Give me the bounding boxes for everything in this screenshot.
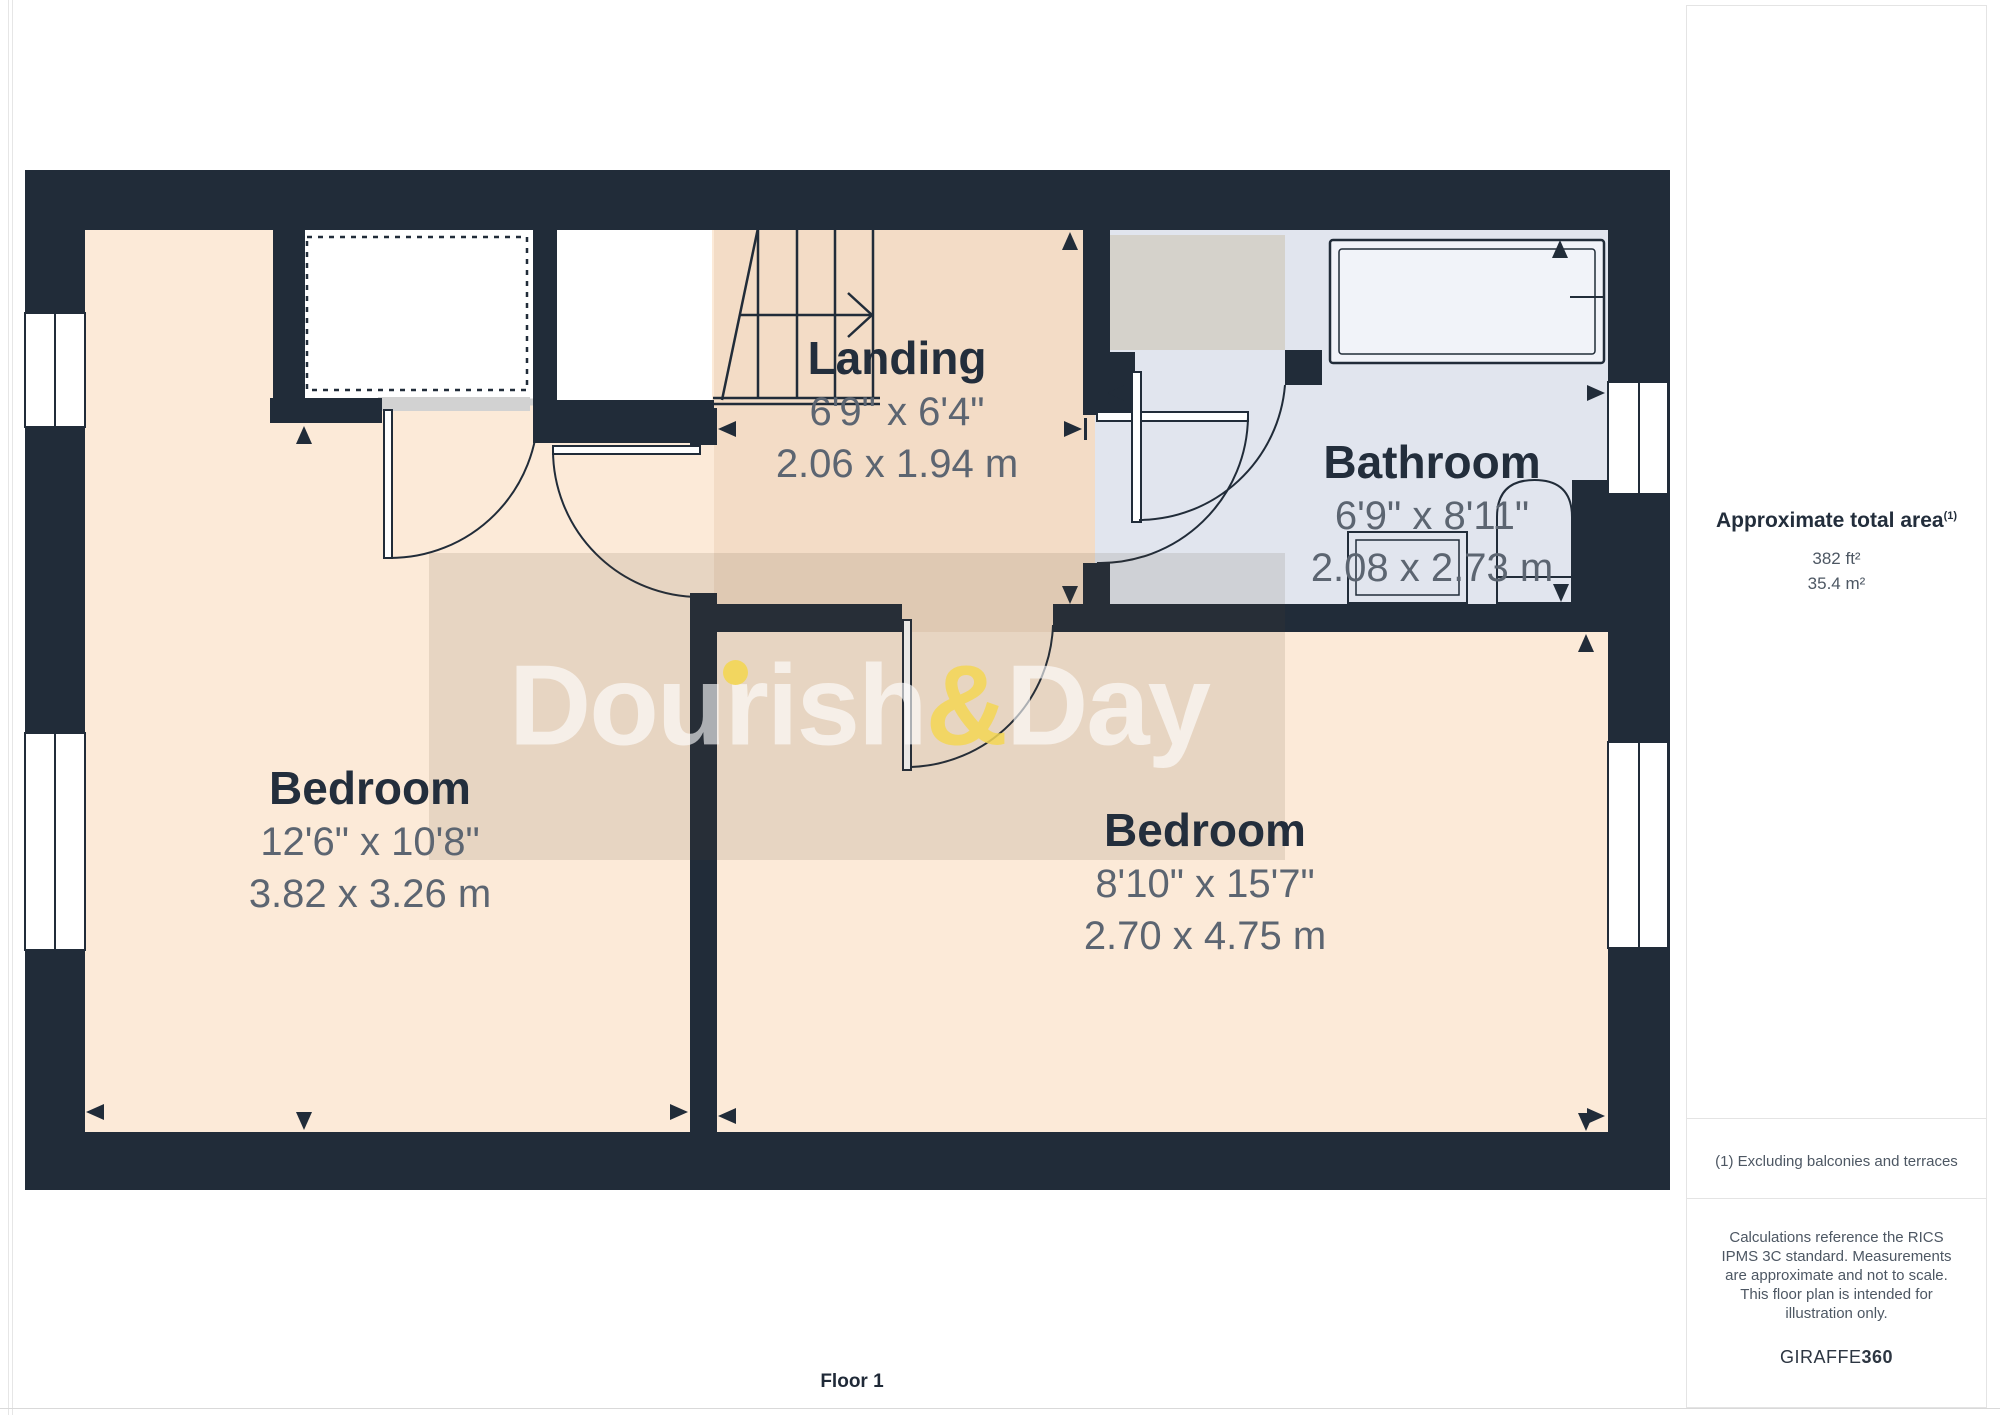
disclaimer-text: Calculations reference the RICS IPMS 3C …	[1711, 1228, 1963, 1323]
room-dims-metric: 2.08 x 2.73 m	[1311, 542, 1553, 594]
watermark-ampersand: &	[926, 643, 1006, 770]
window-right-bedroom	[1608, 742, 1668, 948]
floor-title: Floor 1	[820, 1371, 883, 1393]
room-label-landing: Landing 6'9" x 6'4" 2.06 x 1.94 m	[776, 330, 1018, 490]
room-name: Landing	[776, 330, 1018, 386]
total-area-m: 35.4 m²	[1687, 574, 1986, 594]
room-dims-imperial: 6'9" x 6'4"	[776, 386, 1018, 438]
room-dims-metric: 2.70 x 4.75 m	[1084, 910, 1326, 962]
window-left-upper	[25, 313, 85, 427]
room-dims-imperial: 12'6" x 10'8"	[249, 816, 491, 868]
watermark-logo: Dourish&Day	[509, 641, 1209, 772]
room-dims-metric: 2.06 x 1.94 m	[776, 438, 1018, 490]
brand-name: GIRAFFE	[1780, 1347, 1862, 1367]
floorplan-page: Dourish&Day Bedroom 12'6" x 10'8" 3.82 x…	[0, 0, 2000, 1415]
arrow-tick	[1084, 418, 1087, 440]
total-area-superscript: (1)	[1944, 510, 1957, 522]
room-dims-imperial: 8'10" x 15'7"	[1084, 858, 1326, 910]
total-area-label: Approximate total area	[1716, 509, 1944, 532]
stairwell-gray-block	[1109, 235, 1285, 350]
window-left-lower	[25, 733, 85, 950]
room-name: Bedroom	[249, 760, 491, 816]
total-area-heading: Approximate total area(1)	[1687, 509, 1986, 533]
cupboard-void	[557, 230, 712, 400]
room-label-bathroom: Bathroom 6'9" x 8'11" 2.08 x 2.73 m	[1311, 434, 1553, 594]
window-right-bathroom	[1608, 382, 1668, 494]
bathtub-icon	[1330, 240, 1604, 363]
room-label-bedroom-right: Bedroom 8'10" x 15'7" 2.70 x 4.75 m	[1084, 802, 1326, 962]
measurements-sidebar: Approximate total area(1) 382 ft² 35.4 m…	[1686, 5, 1987, 1408]
closet-opening-strip	[378, 397, 530, 411]
sidebar-divider	[1687, 1118, 1986, 1119]
room-dims-imperial: 6'9" x 8'11"	[1311, 490, 1553, 542]
room-name: Bedroom	[1084, 802, 1326, 858]
watermark-text: sh	[797, 643, 926, 770]
brand-number: 360	[1861, 1347, 1893, 1367]
giraffe360-logo: GIRAFFE360	[1687, 1347, 1986, 1368]
watermark-text: Day	[1006, 643, 1209, 770]
room-dims-metric: 3.82 x 3.26 m	[249, 868, 491, 920]
room-label-bedroom-left: Bedroom 12'6" x 10'8" 3.82 x 3.26 m	[249, 760, 491, 920]
watermark-i-dot	[723, 660, 748, 685]
sidebar-divider	[1687, 1198, 1986, 1199]
watermark-text: i	[767, 643, 797, 770]
total-area-ft: 382 ft²	[1687, 549, 1986, 569]
footnote-balconies: (1) Excluding balconies and terraces	[1687, 1153, 1986, 1170]
room-name: Bathroom	[1311, 434, 1553, 490]
closet-dashed-outline	[307, 237, 527, 390]
